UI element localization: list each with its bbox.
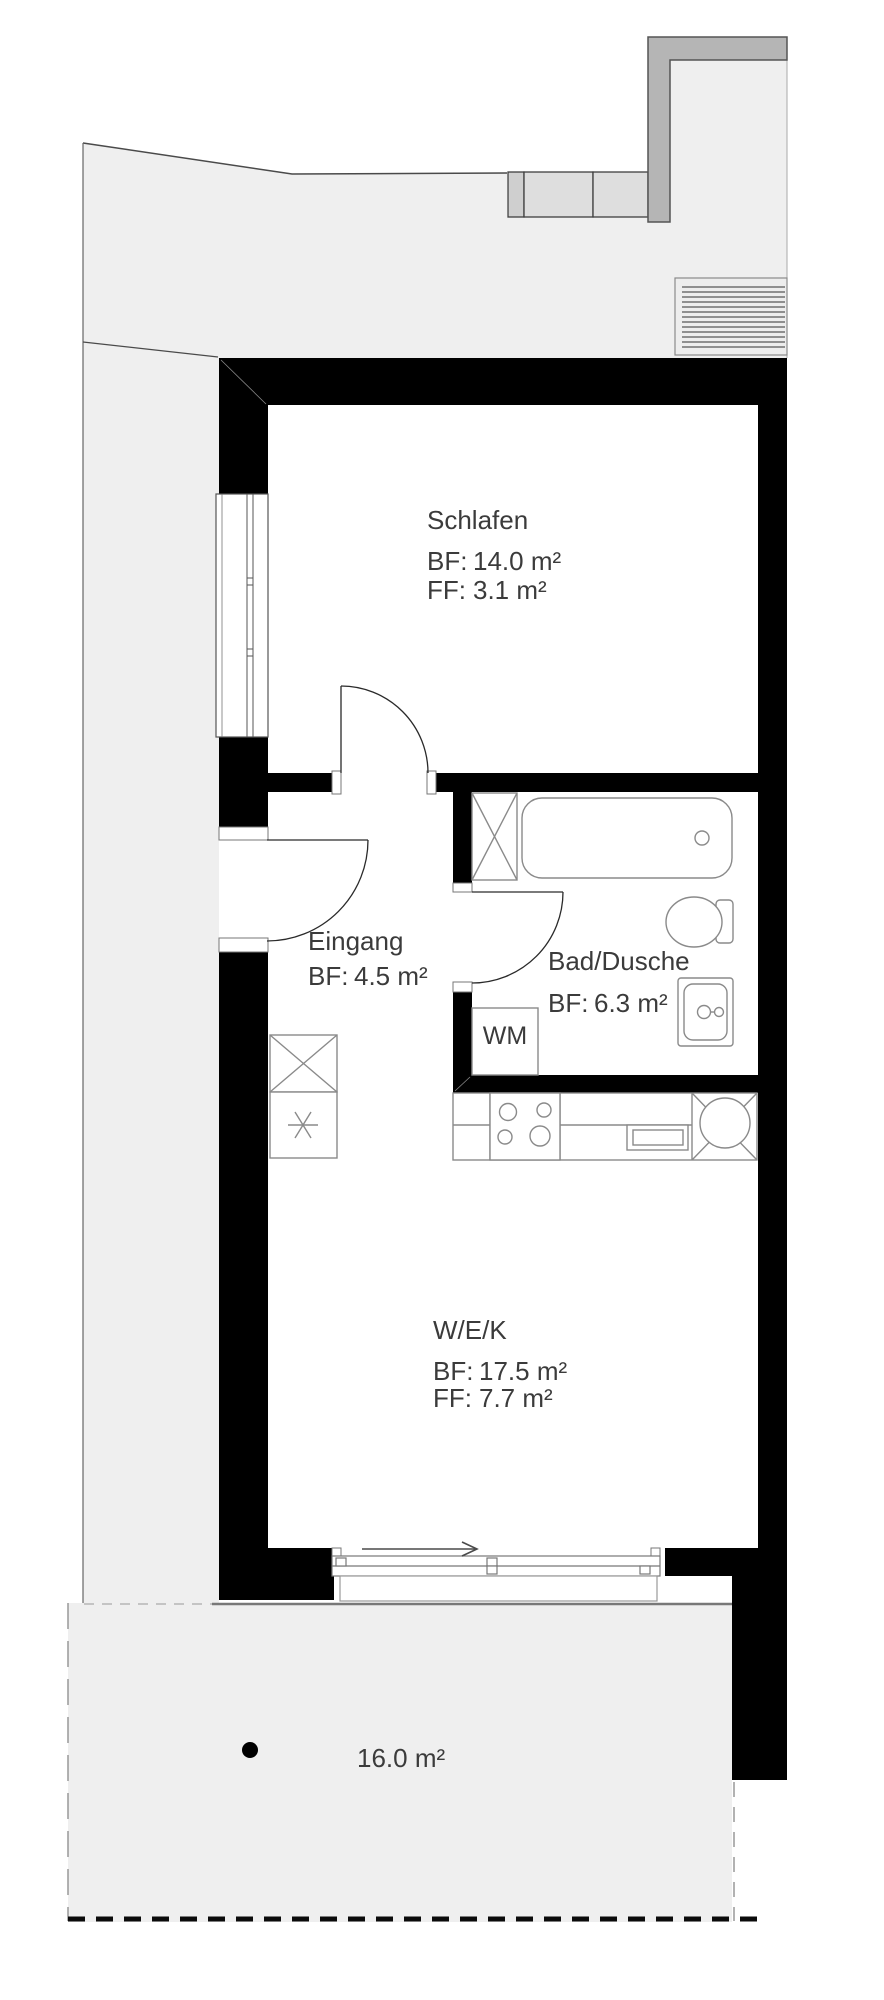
room-label-bad-dusche: Bad/Dusche: [548, 948, 690, 975]
bedroom-window: [216, 494, 268, 737]
kitchen-counter: [453, 1093, 757, 1160]
bf-label: BF:: [308, 963, 354, 990]
tall-cabinet-cross-icon: [270, 1035, 337, 1092]
dishwasher-icon: [627, 1125, 688, 1150]
bf-value: 4.5 m²: [354, 961, 428, 991]
exterior-pier: [732, 1576, 787, 1780]
stairs: [508, 172, 648, 217]
bf-value: 17.5 m²: [479, 1356, 567, 1386]
terrace-dot-icon: [242, 1742, 258, 1758]
bf-label: BF:: [433, 1358, 479, 1385]
door-threshold: [340, 1576, 657, 1601]
ff-label: FF:: [427, 577, 473, 604]
bf-label: BF:: [548, 990, 594, 1017]
freezer-star-icon: [270, 1092, 337, 1158]
bf-value: 14.0 m²: [473, 546, 561, 576]
ff-value: 3.1 m²: [473, 575, 547, 605]
ff-label: FF:: [433, 1385, 479, 1412]
room-label-eingang: Eingang: [308, 928, 403, 955]
bad-bf: BF:6.3 m²: [548, 990, 668, 1017]
sliding-door: [332, 1556, 660, 1601]
schlafen-ff: FF:3.1 m²: [427, 577, 547, 604]
washbasin-icon: [678, 978, 733, 1046]
wek-bf: BF:17.5 m²: [433, 1358, 567, 1385]
eingang-bf: BF:4.5 m²: [308, 963, 428, 990]
terrace-area-label: 16.0 m²: [357, 1745, 445, 1771]
bf-value: 6.3 m²: [594, 988, 668, 1018]
schlafen-bf: BF:14.0 m²: [427, 548, 561, 575]
floor-plan-drawing: [0, 0, 884, 2000]
room-label-wek: W/E/K: [433, 1317, 507, 1344]
bf-label: BF:: [427, 548, 473, 575]
stove-icon: [490, 1093, 560, 1160]
wek-ff: FF:7.7 m²: [433, 1385, 553, 1412]
bathtub-icon: [522, 798, 732, 878]
floor-plan: Schlafen BF:14.0 m² FF:3.1 m² Eingang BF…: [0, 0, 884, 2000]
toilet-icon: [666, 897, 733, 947]
room-label-schlafen: Schlafen: [427, 507, 528, 534]
washing-machine-label: WM: [472, 1024, 538, 1049]
vent-grille-icon: [675, 278, 787, 355]
ff-value: 7.7 m²: [479, 1383, 553, 1413]
shaft-cross-icon: [472, 793, 517, 880]
